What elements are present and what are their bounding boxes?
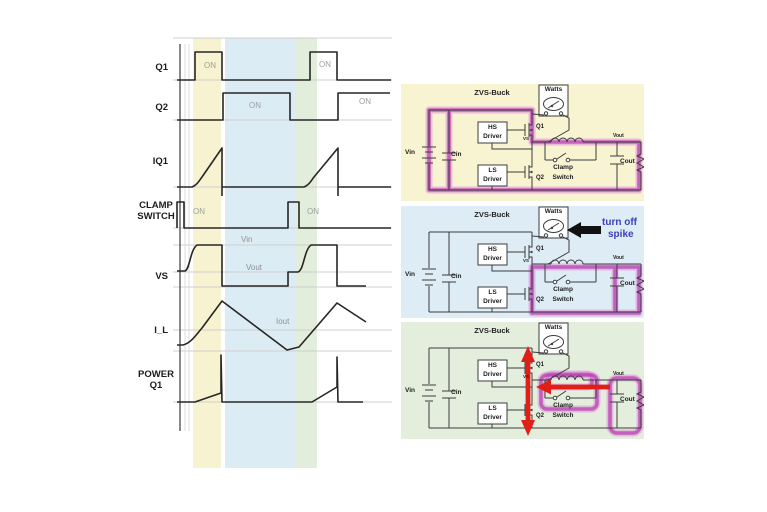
row-label-clamp-switch: CLAMP SWITCH bbox=[134, 200, 178, 222]
row-label-power-q1: POWER Q1 bbox=[134, 369, 178, 391]
waveform-plot bbox=[0, 0, 400, 490]
vout-label: Vout bbox=[613, 255, 624, 261]
cout-label: Cout bbox=[620, 280, 635, 287]
cin-label: Cin bbox=[451, 389, 461, 396]
clamp-switch-label: Clamp Switch bbox=[542, 401, 584, 420]
clamp-on-label-2: ON bbox=[300, 207, 326, 216]
vin-label: Vin bbox=[401, 149, 419, 156]
cout-label: Cout bbox=[620, 396, 635, 403]
vs-node-label: VS bbox=[523, 374, 529, 379]
row-label-iq1: IQ1 bbox=[98, 156, 168, 167]
clamp-switch-label: Clamp Switch bbox=[542, 163, 584, 182]
vout-level-label: Vout bbox=[246, 263, 262, 272]
q1-label: Q1 bbox=[536, 362, 544, 368]
q1-label: Q1 bbox=[536, 124, 544, 130]
circuit-schematic-1 bbox=[401, 84, 644, 201]
cout-label: Cout bbox=[620, 158, 635, 165]
panel-title: ZVS-Buck bbox=[462, 326, 522, 335]
row-label-vs: VS bbox=[98, 271, 168, 282]
panel-title: ZVS-Buck bbox=[462, 88, 522, 97]
watt-meter-label: Watts bbox=[539, 208, 568, 215]
clamp-on-label-1: ON bbox=[186, 207, 212, 216]
clamp-switch-label: Clamp Switch bbox=[542, 285, 584, 304]
power-q1-trace bbox=[177, 355, 363, 402]
hs-driver-label: HS Driver bbox=[478, 362, 507, 379]
q1-on-label-1: ON bbox=[197, 61, 223, 70]
circuit-panel-q2-on: ZVS-Buck Watts HS Driver LS Driver Vin C… bbox=[401, 206, 644, 318]
cin-label: Cin bbox=[451, 273, 461, 280]
row-label-q2: Q2 bbox=[98, 102, 168, 113]
q2-on-label-2: ON bbox=[352, 97, 378, 106]
turn-off-note-line1: turn off bbox=[602, 217, 637, 228]
circuit-panel-q1-on: ZVS-Buck Watts HS Driver LS Driver Vin C… bbox=[401, 84, 644, 201]
vout-label: Vout bbox=[613, 371, 624, 377]
q1-label: Q1 bbox=[536, 246, 544, 252]
cin-label: Cin bbox=[451, 151, 461, 158]
circuit-panel-commutation: ZVS-Buck Watts HS Driver LS Driver Vin C… bbox=[401, 322, 644, 439]
panel-title: ZVS-Buck bbox=[462, 210, 522, 219]
row-label-il: I_L bbox=[98, 325, 168, 336]
ls-driver-label: LS Driver bbox=[478, 289, 507, 306]
hs-driver-label: HS Driver bbox=[478, 246, 507, 263]
vin-level-label: Vin bbox=[241, 235, 252, 244]
vin-label: Vin bbox=[401, 271, 419, 278]
turn-off-note-line2: spike bbox=[608, 229, 634, 240]
circuit-schematic-3 bbox=[401, 322, 644, 439]
iq1-current-trace bbox=[177, 148, 391, 196]
row-label-q1: Q1 bbox=[98, 62, 168, 73]
vs-voltage-trace bbox=[177, 245, 366, 286]
conduction-path-highlight bbox=[429, 110, 639, 190]
zvs-buck-figure: Q1 Q2 IQ1 CLAMP SWITCH VS I_L POWER Q1 O… bbox=[0, 0, 767, 512]
ls-driver-label: LS Driver bbox=[478, 405, 507, 422]
ls-driver-label: LS Driver bbox=[478, 167, 507, 184]
vout-label: Vout bbox=[613, 133, 624, 139]
hs-driver-label: HS Driver bbox=[478, 124, 507, 141]
vs-node-label: VS bbox=[523, 258, 529, 263]
vs-node-label: VS bbox=[523, 136, 529, 141]
watt-meter-label: Watts bbox=[539, 324, 568, 331]
iout-level-label: Iout bbox=[276, 317, 289, 326]
watt-meter-label: Watts bbox=[539, 86, 568, 93]
q2-on-label-1: ON bbox=[242, 101, 268, 110]
turn-off-spike-arrow-icon bbox=[567, 222, 601, 238]
vin-label: Vin bbox=[401, 387, 419, 394]
inductor-current-trace bbox=[177, 301, 366, 350]
q1-on-label-2: ON bbox=[312, 60, 338, 69]
